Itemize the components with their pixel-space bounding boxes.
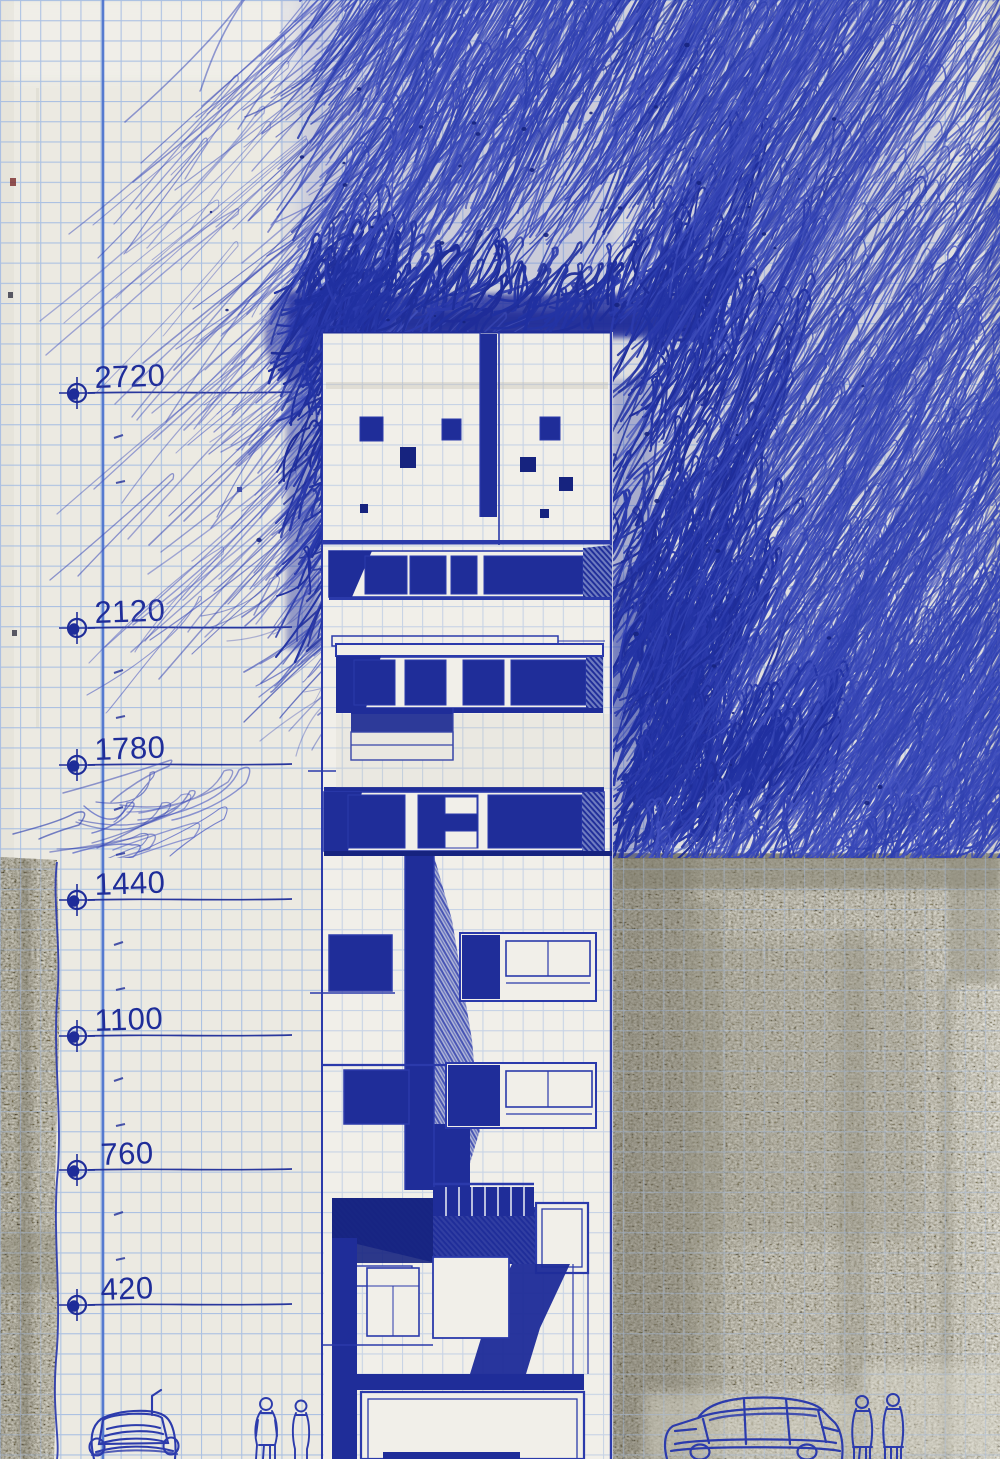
svg-text:760: 760 [100, 1135, 154, 1172]
svg-text:1100: 1100 [94, 1001, 164, 1038]
svg-text:1440: 1440 [94, 865, 166, 902]
svg-text:420: 420 [100, 1270, 154, 1307]
svg-text:1780: 1780 [94, 730, 166, 767]
